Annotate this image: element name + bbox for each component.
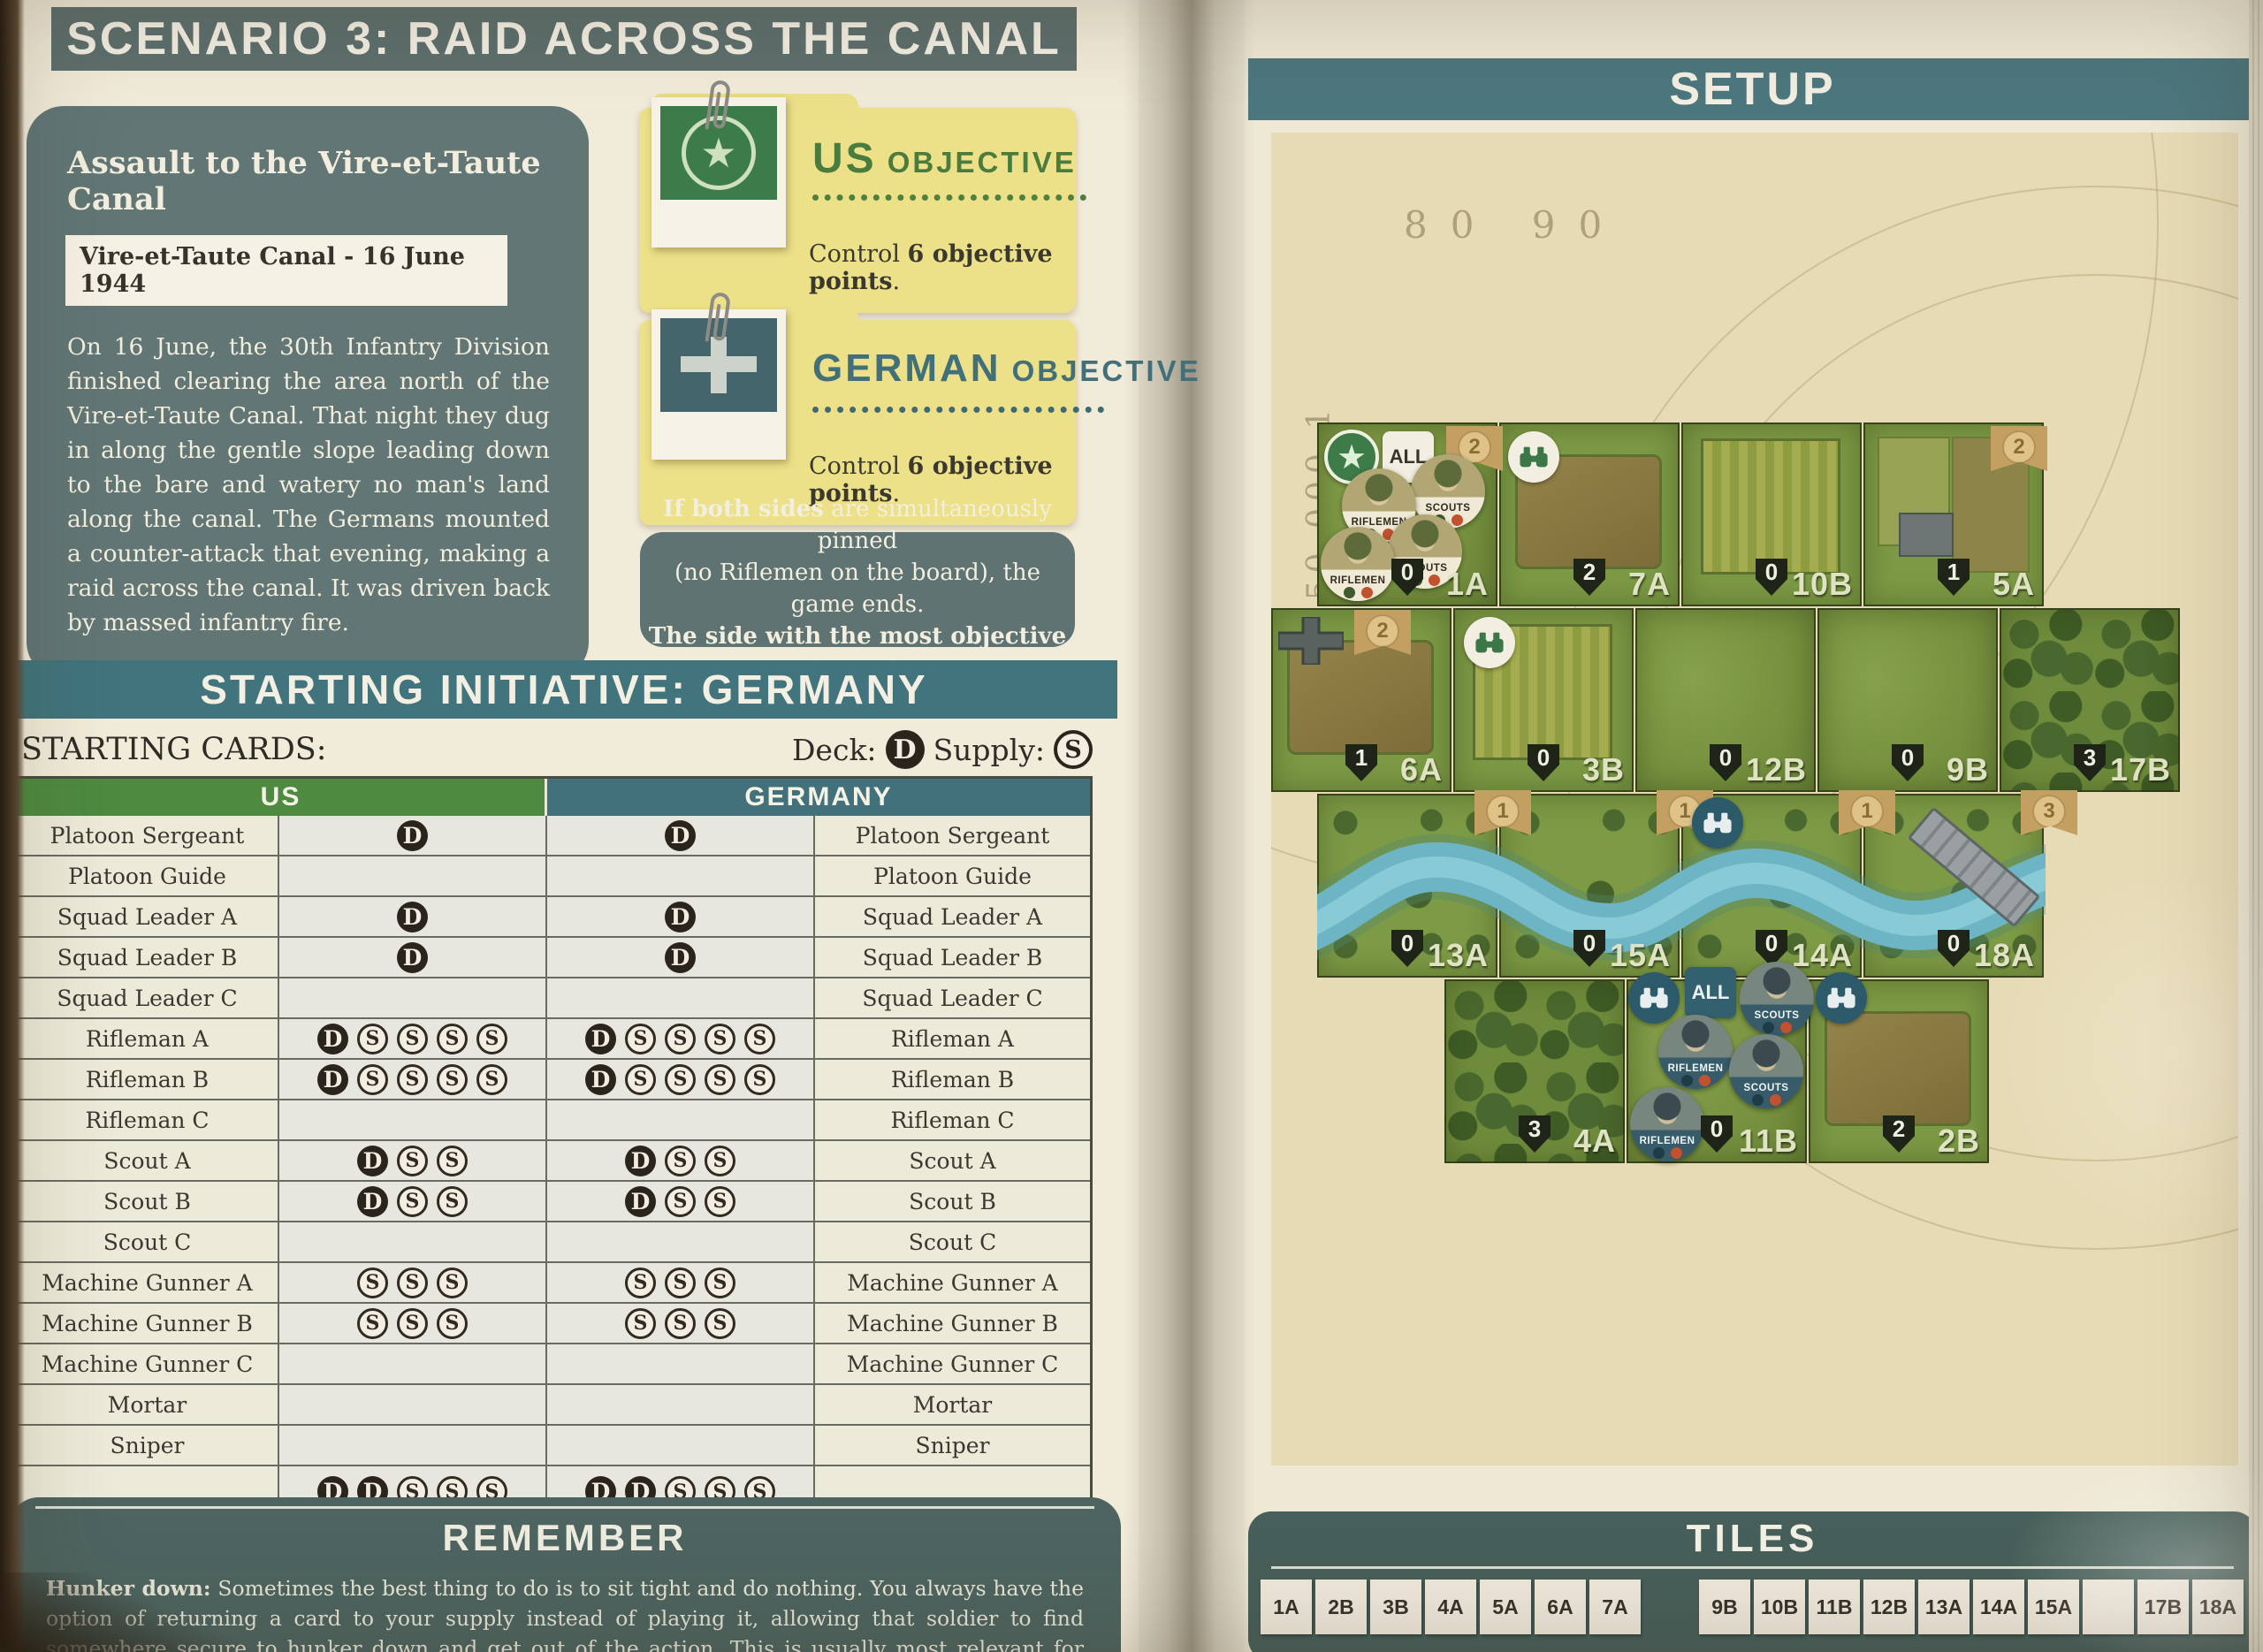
supply-token: S <box>437 1186 468 1217</box>
us-objective-text: Control 6 objective points. <box>809 240 1076 295</box>
deck-token-icon: D <box>886 730 925 769</box>
binoculars-icon <box>1692 797 1743 849</box>
map-numerals: 80 90 <box>1404 203 1625 247</box>
building-icon <box>1899 513 1954 557</box>
defense-shield-badge: 2 <box>1573 559 1605 596</box>
supply-token: S <box>665 1268 696 1298</box>
deck-token: D <box>357 1146 388 1176</box>
germany-tokens-cell <box>547 1100 815 1141</box>
setup-map: 80 90 350 000 1 ★ALL2SCOUTSRIFLEMENSCOUT… <box>1271 133 2238 1465</box>
deck-token: D <box>665 820 696 851</box>
riflemen-token: RIFLEMEN <box>1630 1087 1704 1161</box>
tile-id-label: 3B <box>1582 751 1625 788</box>
tile-id-label: 5A <box>1993 566 2035 603</box>
supply-token: S <box>397 1064 428 1095</box>
row-label-us: Rifleman B <box>17 1060 279 1100</box>
supply-token: S <box>476 1024 507 1054</box>
supply-token: S <box>705 1308 735 1339</box>
tile-id-label: 6A <box>1400 751 1443 788</box>
table-header-germany: GERMANY <box>547 779 1090 816</box>
map-tile-10B: 010B <box>1681 423 1862 606</box>
row-label-germany: Squad Leader B <box>815 938 1090 978</box>
row-label-germany: Rifleman A <box>815 1019 1090 1060</box>
map-tile-7A: 27A <box>1499 423 1680 606</box>
flag-value: 2 <box>2002 430 2036 464</box>
unit-token-icons <box>1630 1147 1704 1159</box>
tile-slot-18A: 18A <box>2192 1580 2244 1634</box>
token-line: SSS <box>353 1308 472 1339</box>
dotted-rule <box>812 407 1104 413</box>
tile-id-label: 15A <box>1610 937 1671 974</box>
tile-slot-10B: 10B <box>1754 1580 1805 1634</box>
germany-tokens-cell: D <box>547 816 815 856</box>
germany-tokens-cell <box>547 1344 815 1385</box>
tile-id-label: 7A <box>1628 566 1671 603</box>
tile-id-label: 9B <box>1947 751 1989 788</box>
row-label-us: Rifleman A <box>17 1019 279 1060</box>
row-label-germany: Platoon Sergeant <box>815 816 1090 856</box>
tile-slot-17B: 17B <box>2137 1580 2189 1634</box>
supply-token: S <box>357 1268 388 1298</box>
tile-id-label: 18A <box>1974 937 2035 974</box>
germany-tokens-cell: DSS <box>547 1141 815 1182</box>
tile-slot-gap <box>1644 1580 1695 1634</box>
row-label-us: Scout C <box>17 1222 279 1263</box>
supply-token: S <box>357 1308 388 1339</box>
deck-token: D <box>397 902 428 933</box>
supply-token: S <box>665 1024 696 1054</box>
scenario-title-bar: SCENARIO 3: RAID ACROSS THE CANAL <box>51 7 1077 71</box>
token-line: DSSSS <box>581 1024 780 1054</box>
unit-token-label: RIFLEMEN <box>1658 1063 1733 1074</box>
flag-value: 1 <box>1486 795 1520 828</box>
token-line: SSS <box>353 1268 472 1298</box>
row-label-us: Machine Gunner C <box>17 1344 279 1385</box>
supply-token: S <box>665 1146 696 1176</box>
row-label-us: Mortar <box>17 1385 279 1426</box>
photo-left-edge <box>0 0 25 1652</box>
map-tile-9B: 09B <box>1817 608 1998 792</box>
german-objective-title: GERMANOBJECTIVE <box>812 346 1201 391</box>
us-tokens-cell: D <box>279 816 547 856</box>
starting-cards-row: STARTING CARDS: Deck: D Supply: S <box>21 728 1093 771</box>
row-label-us: Platoon Sergeant <box>17 816 279 856</box>
unit-token-icons <box>1729 1094 1803 1106</box>
defense-shield-badge: 0 <box>1756 559 1787 596</box>
unit-class-icon <box>1752 1094 1764 1106</box>
tile-id-label: 4A <box>1573 1123 1616 1160</box>
row-label-us: Sniper <box>17 1426 279 1466</box>
us-tokens-cell: SSS <box>279 1304 547 1344</box>
germany-tokens-cell: D <box>547 897 815 938</box>
deck-token: D <box>665 902 696 933</box>
page-stack-edge <box>2249 0 2263 1652</box>
us-tokens-cell: D <box>279 897 547 938</box>
tile-slot-15A: 15A <box>2028 1580 2079 1634</box>
map-tile-2B: 22B <box>1809 979 1989 1163</box>
deck-supply-legend: Deck: D Supply: S <box>792 730 1093 769</box>
us-tokens-cell <box>279 978 547 1019</box>
tile-id-label: 13A <box>1428 937 1489 974</box>
tile-id-label: 17B <box>2110 751 2171 788</box>
us-tokens-cell: DSS <box>279 1141 547 1182</box>
map-tile-3B: 03B <box>1453 608 1634 792</box>
objective-flag-token: 2 <box>1991 426 2047 477</box>
supply-token: S <box>397 1146 428 1176</box>
tile-slot-11B: 11B <box>1809 1580 1860 1634</box>
us-tokens-cell: SSS <box>279 1263 547 1304</box>
setup-title: SETUP <box>1669 63 1835 116</box>
map-tile-6A: 216A <box>1271 608 1452 792</box>
row-label-us: Squad Leader B <box>17 938 279 978</box>
deck-token: D <box>317 1024 348 1054</box>
supply-token: S <box>437 1146 468 1176</box>
deck-token: D <box>625 1186 656 1217</box>
token-line: D <box>660 820 700 851</box>
supply-token: S <box>397 1186 428 1217</box>
unit-class-icon <box>1344 587 1355 598</box>
deck-token: D <box>397 942 428 973</box>
tile-slot-blank <box>2083 1580 2134 1634</box>
starting-cards-table: USGERMANYPlatoon SergeantDDPlatoon Serge… <box>14 776 1093 1556</box>
binoculars-icon <box>1628 972 1680 1024</box>
all-token: ALL <box>1685 967 1736 1018</box>
defense-shield-badge: 3 <box>1519 1115 1551 1153</box>
tile-slot-3B: 3B <box>1370 1580 1421 1634</box>
tile-id-label: 12B <box>1746 751 1807 788</box>
row-label-germany: Mortar <box>815 1385 1090 1426</box>
us-tokens-cell <box>279 1222 547 1263</box>
row-label-germany: Machine Gunner B <box>815 1304 1090 1344</box>
deck-token: D <box>585 1024 616 1054</box>
supply-token: S <box>625 1308 656 1339</box>
deck-token: D <box>397 820 428 851</box>
us-tokens-cell <box>279 1344 547 1385</box>
token-line: D <box>392 820 432 851</box>
deck-token: D <box>585 1064 616 1095</box>
row-label-germany: Rifleman B <box>815 1060 1090 1100</box>
map-tile-11B: ALLSCOUTSRIFLEMENSCOUTSRIFLEMEN011B <box>1627 979 1807 1163</box>
binoculars-icon <box>1816 972 1867 1024</box>
german-cross-icon <box>1278 617 1344 668</box>
supply-label: Supply: <box>933 733 1045 767</box>
token-line: DSS <box>353 1186 472 1217</box>
unit-class-icon <box>1763 1022 1774 1033</box>
unit-id-icon <box>1429 575 1440 586</box>
map-tile-1A: ★ALL2SCOUTSRIFLEMENSCOUTSRIFLEMEN01A <box>1317 423 1497 606</box>
riflemen-token: RIFLEMEN <box>1321 527 1395 601</box>
scenario-heading: Assault to the Vire-et-Taute Canal <box>67 145 553 217</box>
starting-cards-label: STARTING CARDS: <box>21 732 327 767</box>
unit-id-icon <box>1699 1075 1711 1086</box>
token-line: D <box>392 902 432 933</box>
unit-id-icon <box>1361 587 1373 598</box>
tile-slot-7A: 7A <box>1589 1580 1641 1634</box>
supply-token: S <box>665 1064 696 1095</box>
tile-slot-14A: 14A <box>1973 1580 2024 1634</box>
token-line: D <box>392 942 432 973</box>
token-line: DSSSS <box>581 1064 780 1095</box>
unit-id-icon <box>1671 1147 1682 1159</box>
unit-token-label: RIFLEMEN <box>1630 1136 1704 1146</box>
germany-tokens-cell: DSSSS <box>547 1060 815 1100</box>
scouts-token: SCOUTS <box>1740 962 1814 1036</box>
row-label-germany: Scout A <box>815 1141 1090 1182</box>
defense-shield-badge: 0 <box>1892 744 1924 781</box>
defense-shield-badge: 2 <box>1883 1115 1915 1153</box>
tile-slot-4A: 4A <box>1425 1580 1476 1634</box>
supply-token: S <box>476 1064 507 1095</box>
tile-slot-6A: 6A <box>1535 1580 1586 1634</box>
tile-slot-12B: 12B <box>1863 1580 1915 1634</box>
tile-slot-2B: 2B <box>1315 1580 1367 1634</box>
binoculars-icon <box>1508 431 1559 483</box>
scenario-description-box: Assault to the Vire-et-Taute Canal Vire-… <box>27 106 589 679</box>
supply-token: S <box>705 1146 735 1176</box>
photo-corner-shadow <box>0 1572 265 1652</box>
dotted-rule <box>812 194 1086 201</box>
row-label-us: Squad Leader C <box>17 978 279 1019</box>
us-tokens-cell: DSSSS <box>279 1060 547 1100</box>
token-line: D <box>660 942 700 973</box>
token-line: DSSSS <box>313 1024 512 1054</box>
scenario-date-strip: Vire-et-Taute Canal - 16 June 1944 <box>65 235 507 306</box>
germany-tokens-cell <box>547 1385 815 1426</box>
us-tokens-cell <box>279 1100 547 1141</box>
unit-id-icon <box>1780 1022 1792 1033</box>
row-label-germany: Squad Leader C <box>815 978 1090 1019</box>
unit-token-label: RIFLEMEN <box>1321 575 1395 586</box>
us-flag-photo: ★ <box>651 97 786 247</box>
unit-token-icons <box>1321 587 1395 598</box>
row-label-us: Scout A <box>17 1141 279 1182</box>
supply-token: S <box>665 1308 696 1339</box>
deck-label: Deck: <box>792 733 877 767</box>
supply-token: S <box>744 1064 775 1095</box>
tile-id-label: 11B <box>1739 1123 1798 1160</box>
supply-token: S <box>437 1308 468 1339</box>
token-line: D <box>660 902 700 933</box>
unit-class-icon <box>1653 1147 1665 1159</box>
map-tile-12B: 012B <box>1635 608 1816 792</box>
tile-slot-9B: 9B <box>1699 1580 1750 1634</box>
germany-tokens-cell: SSS <box>547 1304 815 1344</box>
supply-token: S <box>705 1024 735 1054</box>
deck-token: D <box>625 1146 656 1176</box>
us-tokens-cell <box>279 1426 547 1466</box>
unit-token-icons <box>1658 1075 1733 1086</box>
token-line: SSS <box>621 1308 740 1339</box>
flag-value: 3 <box>2032 795 2066 828</box>
scenario-title: SCENARIO 3: RAID ACROSS THE CANAL <box>66 12 1062 65</box>
riflemen-token: RIFLEMEN <box>1658 1015 1733 1089</box>
supply-token: S <box>437 1024 468 1054</box>
row-label-us: Machine Gunner A <box>17 1263 279 1304</box>
german-flag-photo <box>651 309 786 460</box>
supply-token: S <box>665 1186 696 1217</box>
supply-token: S <box>625 1064 656 1095</box>
row-label-us: Rifleman C <box>17 1100 279 1141</box>
token-line: DSSSS <box>313 1064 512 1095</box>
germany-tokens-cell <box>547 1222 815 1263</box>
unit-id-icon <box>1452 514 1463 526</box>
supply-token: S <box>357 1024 388 1054</box>
tiles-row: 1A2B3B4A5A6A7A9B10B11B12B13A14A15A17B18A <box>1248 1569 2257 1634</box>
germany-tokens-cell <box>547 978 815 1019</box>
token-line: SSS <box>621 1268 740 1298</box>
objective-flag-token: 2 <box>1354 610 1411 661</box>
tiles-box: TILES 1A2B3B4A5A6A7A9B10B11B12B13A14A15A… <box>1248 1511 2257 1652</box>
us-objective-title: USOBJECTIVE <box>812 134 1077 183</box>
defense-shield-badge: 0 <box>1391 559 1423 596</box>
deck-token: D <box>665 942 696 973</box>
supply-token: S <box>625 1024 656 1054</box>
supply-token: S <box>437 1268 468 1298</box>
setup-title-bar: SETUP <box>1248 58 2257 120</box>
row-label-us: Scout B <box>17 1182 279 1222</box>
supply-token: S <box>357 1064 388 1095</box>
binoculars-icon <box>1464 617 1515 668</box>
germany-tokens-cell: SSS <box>547 1263 815 1304</box>
unit-token-label: SCOUTS <box>1729 1083 1803 1093</box>
scouts-token: SCOUTS <box>1729 1034 1803 1108</box>
tile-id-label: 10B <box>1792 566 1853 603</box>
unit-token-label: SCOUTS <box>1740 1010 1814 1021</box>
supply-token: S <box>705 1064 735 1095</box>
map-tile-17B: 317B <box>2000 608 2180 792</box>
table-header-us: US <box>17 779 547 816</box>
defense-shield-badge: 0 <box>1701 1115 1733 1153</box>
germany-tokens-cell: DSS <box>547 1182 815 1222</box>
tile-slot-1A: 1A <box>1261 1580 1312 1634</box>
row-label-germany: Machine Gunner A <box>815 1263 1090 1304</box>
us-tokens-cell: D <box>279 938 547 978</box>
unit-id-icon <box>1770 1094 1781 1106</box>
unit-class-icon <box>1681 1075 1693 1086</box>
supply-token: S <box>437 1064 468 1095</box>
supply-token: S <box>397 1268 428 1298</box>
germany-tokens-cell <box>547 856 815 897</box>
defense-shield-badge: 0 <box>1710 744 1741 781</box>
supply-token: S <box>625 1268 656 1298</box>
deck-token: D <box>317 1064 348 1095</box>
germany-tokens-cell: DSSSS <box>547 1019 815 1060</box>
token-line: DSS <box>621 1186 740 1217</box>
supply-token: S <box>705 1268 735 1298</box>
supply-token: S <box>397 1308 428 1339</box>
scenario-body-text: On 16 June, the 30th Infantry Division f… <box>67 331 550 641</box>
unit-token-label: SCOUTS <box>1411 503 1485 514</box>
row-label-germany: Scout B <box>815 1182 1090 1222</box>
starting-initiative-bar: STARTING INITIATIVE: GERMANY <box>11 660 1117 719</box>
tile-slot-13A: 13A <box>1918 1580 1970 1634</box>
supply-token: S <box>744 1024 775 1054</box>
defense-shield-badge: 1 <box>1938 559 1970 596</box>
germany-tokens-cell <box>547 1426 815 1466</box>
flag-value: 2 <box>1366 614 1399 648</box>
row-label-germany: Squad Leader A <box>815 897 1090 938</box>
flag-value: 1 <box>1850 795 1884 828</box>
row-label-germany: Platoon Guide <box>815 856 1090 897</box>
row-label-us: Platoon Guide <box>17 856 279 897</box>
us-objective-folder: ★ USOBJECTIVE Control 6 objective points… <box>639 108 1076 313</box>
token-line: DSS <box>353 1146 472 1176</box>
us-tokens-cell <box>279 856 547 897</box>
row-label-us: Machine Gunner B <box>17 1304 279 1344</box>
remember-title: REMEMBER <box>9 1517 1121 1559</box>
us-tokens-cell: DSS <box>279 1182 547 1222</box>
deck-token: D <box>357 1186 388 1217</box>
token-line: DSS <box>621 1146 740 1176</box>
row-label-germany: Rifleman C <box>815 1100 1090 1141</box>
defense-shield-badge: 0 <box>1528 744 1559 781</box>
supply-token: S <box>397 1024 428 1054</box>
us-tokens-cell: DSSSS <box>279 1019 547 1060</box>
tiles-title: TILES <box>1248 1517 2257 1561</box>
supply-token: S <box>705 1186 735 1217</box>
us-tokens-cell <box>279 1385 547 1426</box>
defense-shield-badge: 3 <box>2074 744 2106 781</box>
row-label-germany: Sniper <box>815 1426 1090 1466</box>
tile-slot-5A: 5A <box>1480 1580 1531 1634</box>
tile-id-label: 1A <box>1446 566 1489 603</box>
supply-token-icon: S <box>1054 730 1093 769</box>
unit-token-icons <box>1740 1022 1814 1033</box>
map-tile-5A: 215A <box>1863 423 2044 606</box>
rulebook-photo: SCENARIO 3: RAID ACROSS THE CANAL Assaul… <box>0 0 2263 1652</box>
tile-id-label: 14A <box>1792 937 1853 974</box>
defense-shield-badge: 1 <box>1345 744 1377 781</box>
germany-tokens-cell: D <box>547 938 815 978</box>
starting-initiative-text: STARTING INITIATIVE: GERMANY <box>200 666 927 713</box>
tile-id-label: 2B <box>1938 1123 1980 1160</box>
book-spine <box>1123 0 1255 1652</box>
row-label-germany: Machine Gunner C <box>815 1344 1090 1385</box>
map-tile-4A: 34A <box>1444 979 1625 1163</box>
row-label-us: Squad Leader A <box>17 897 279 938</box>
pinned-rule-note: If both sides are simultaneously pinned … <box>640 532 1075 647</box>
row-label-germany: Scout C <box>815 1222 1090 1263</box>
